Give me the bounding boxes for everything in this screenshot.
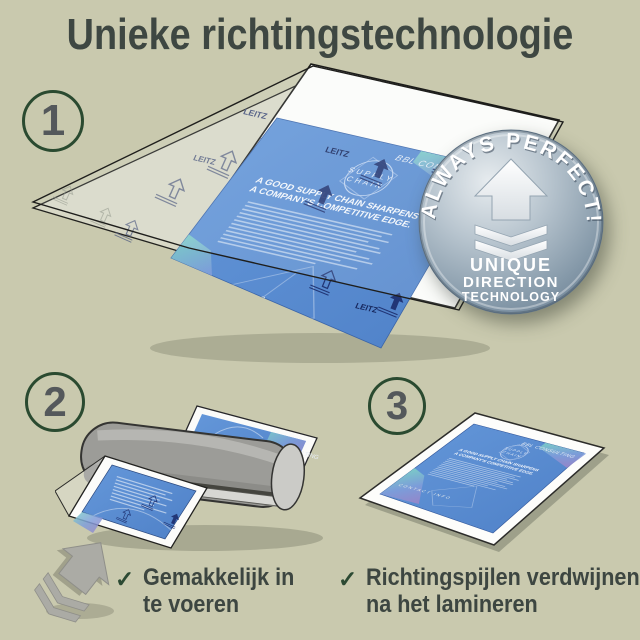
checklist-line: Richtingspijlen verdwijnen: [366, 565, 640, 592]
step-1-marker: 1: [22, 90, 84, 152]
always-perfect-badge: ALWAYS PERFECT! ALWAYS PERFECT! UNIQUE D…: [417, 128, 605, 316]
checklist-line: na het lamineren: [366, 592, 640, 619]
pouch-shadow: [150, 333, 490, 363]
checklist-item-arrows-disappear: ✓ Richtingspijlen verdwijnen na het lami…: [338, 565, 640, 619]
checklist-text: Gemakkelijk in te voeren: [143, 565, 294, 619]
checklist-line: Gemakkelijk in: [143, 565, 294, 592]
checklist-text: Richtingspijlen verdwijnen na het lamine…: [366, 565, 640, 619]
badge-word-unique: UNIQUE: [470, 255, 552, 275]
badge-word-technology: TECHNOLOGY: [462, 290, 560, 304]
step-1-number: 1: [41, 96, 65, 146]
infographic-canvas: Unieke richtingstechnologie: [0, 0, 640, 640]
illustration-laminated-document: BBL CONSULTING SUPPLY CHAIN A GOOD SUPPL…: [352, 393, 622, 558]
checklist-item-easy-feed: ✓ Gemakkelijk in te voeren: [115, 565, 311, 619]
checklist-line: te voeren: [143, 592, 294, 619]
badge-graphic: ALWAYS PERFECT! ALWAYS PERFECT! UNIQUE D…: [417, 128, 605, 316]
page-title: Unieke richtingstechnologie: [45, 10, 595, 60]
checkmark-icon: ✓: [115, 568, 134, 591]
badge-word-direction: DIRECTION: [463, 274, 559, 291]
checkmark-icon: ✓: [338, 568, 357, 591]
